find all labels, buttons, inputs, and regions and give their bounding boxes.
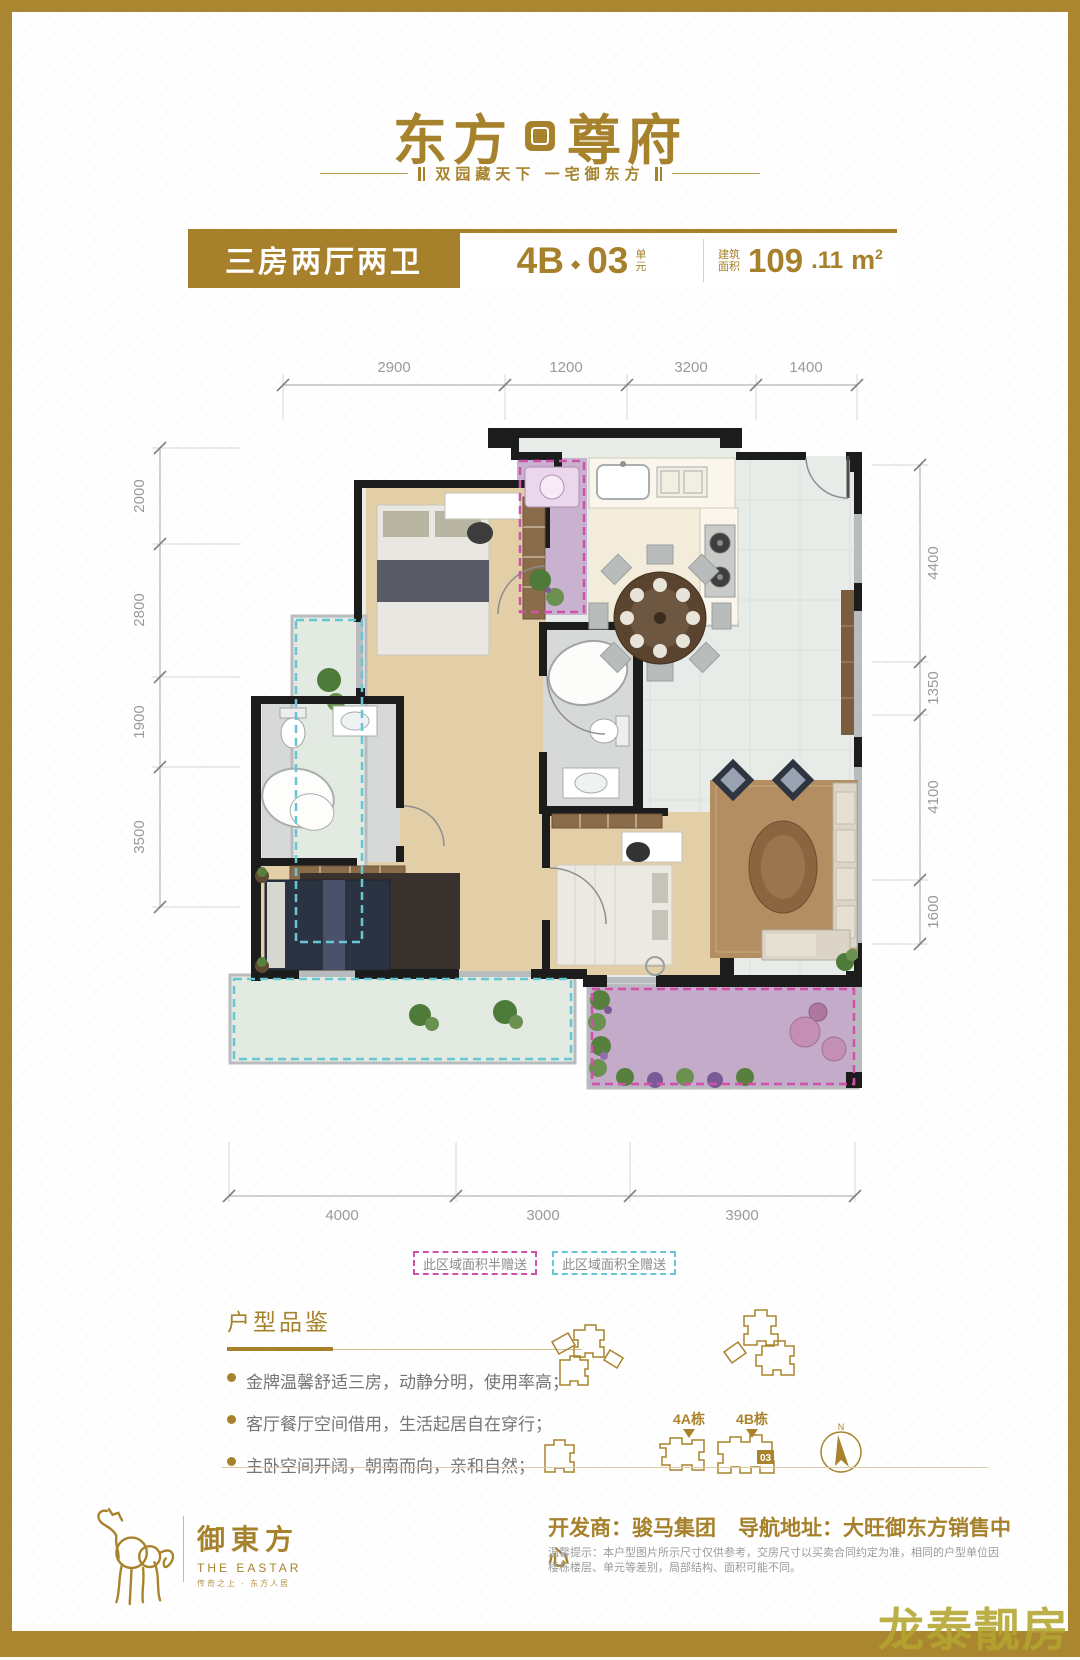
bullet-icon [227, 1373, 236, 1382]
area-unit: m2 [851, 245, 883, 276]
spec-bar: 三房两厅两卫 4B ◆ 03 单 元 建筑 面积 109.11 m2 [188, 229, 897, 288]
feature-text-1: 金牌温馨舒适三房，动静分明，使用率高； [246, 1368, 569, 1393]
footer-logo: 御東方 THE EASTAR 传奇之上 · 东方人居 [197, 1518, 301, 1589]
footer-divider [222, 1467, 988, 1468]
marker-4b-icon [746, 1429, 758, 1438]
wardrobe-bedroom3 [552, 814, 662, 828]
master-furniture [255, 867, 460, 973]
unit-code: 4B [517, 240, 564, 282]
dim-top-3: 3200 [674, 359, 707, 376]
terrace-pouf [790, 1017, 820, 1047]
floor-plan [205, 425, 865, 1095]
dim-bottom-3: 3900 [725, 1207, 758, 1224]
area-label-top: 建筑 [718, 249, 740, 261]
marker-4a-icon [683, 1429, 695, 1438]
bullet-icon [227, 1457, 236, 1466]
dim-bottom-1: 4000 [325, 1207, 358, 1224]
dim-top-1: 2900 [377, 359, 410, 376]
building-4a [660, 1438, 704, 1470]
bullet-icon [227, 1415, 236, 1424]
area-group: 建筑 面积 109.11 m2 [704, 233, 897, 288]
legend-full-gift: 此区域面积全赠送 [552, 1251, 676, 1275]
wardrobe-bedroom2 [523, 497, 545, 619]
footer-logo-sub: 传奇之上 · 东方人居 [197, 1578, 301, 1589]
unit-suffix-top: 单 [635, 249, 646, 261]
compass-icon: N [821, 1422, 861, 1472]
compass-n: N [838, 1422, 845, 1432]
unit-code-group: 4B ◆ 03 单 元 [460, 233, 703, 288]
features-rule [227, 1347, 582, 1351]
watermark: 龙泰靓房 [878, 1594, 1070, 1660]
unit-suffix: 单 元 [635, 249, 646, 273]
area-dec: .11 [811, 247, 843, 275]
area-sup: 2 [875, 246, 883, 262]
balcony-bottom [230, 975, 575, 1063]
feature-text-3: 主卧空间开阔，朝南而向，亲和自然； [246, 1452, 535, 1477]
brand-seal-icon [525, 121, 555, 151]
dim-left-4: 3500 [131, 820, 148, 853]
tagline-bars-right-icon [655, 167, 662, 181]
area-label: 建筑 面积 [718, 249, 740, 273]
unit-suffix-bottom: 元 [635, 261, 646, 273]
unit-number: 03 [587, 240, 628, 282]
spec-bar-right: 4B ◆ 03 单 元 建筑 面积 109.11 m2 [460, 229, 897, 288]
legend-full-label: 此区域面积全赠送 [562, 1254, 666, 1273]
area-int: 109 [748, 242, 803, 280]
unit-badge-text: 03 [760, 1453, 772, 1464]
kitchen-sink [597, 465, 649, 499]
tagline-rule-left [320, 173, 408, 174]
dim-top-4: 1400 [789, 359, 822, 376]
developer-name: 开发商：骏马集团 [548, 1517, 716, 1540]
chair2 [467, 522, 493, 544]
building-outlines [545, 1310, 794, 1473]
label-4b: 4B栋 [736, 1411, 768, 1427]
horse-logo-icon [86, 1502, 181, 1614]
tagline-rule-right [672, 173, 760, 174]
desk2 [445, 493, 520, 519]
footer-logo-cn: 御東方 [197, 1518, 301, 1558]
brand-tagline-row: 双园藏天下 一宅御东方 [0, 163, 1080, 184]
dim-right-2: 1350 [925, 671, 942, 704]
terrace [588, 985, 858, 1088]
legend-half-label: 此区域面积半赠送 [423, 1254, 527, 1273]
dim-right-4: 1600 [925, 895, 942, 928]
footer-logo-en: THE EASTAR [197, 1561, 301, 1575]
dim-left-2: 2800 [131, 593, 148, 626]
terrace-pouf [822, 1037, 846, 1061]
dim-left-3: 1900 [131, 705, 148, 738]
tagline-bars-left-icon [418, 167, 425, 181]
site-plan: 4A栋 4B栋 03 N [530, 1295, 1000, 1495]
disclaimer-text: 温馨提示：本户型图片所示尺寸仅供参考，交房尺寸以买卖合同约定为准，相同的户型单位… [548, 1546, 1000, 1576]
legend-half-gift: 此区域面积半赠送 [413, 1251, 537, 1275]
layout-type-label: 三房两厅两卫 [188, 229, 460, 288]
label-4a: 4A栋 [673, 1411, 705, 1427]
dim-right-1: 4400 [925, 546, 942, 579]
footer-logo-divider [183, 1516, 184, 1582]
dim-right-3: 4100 [925, 780, 942, 813]
dim-bottom-2: 3000 [526, 1207, 559, 1224]
chair3 [626, 842, 650, 862]
area-label-bottom: 面积 [718, 261, 740, 273]
poster-page: 东方 尊府 双园藏天下 一宅御东方 三房两厅两卫 4B ◆ 03 单 元 [0, 0, 1080, 1657]
diamond-icon: ◆ [571, 257, 580, 271]
feature-text-2: 客厅餐厅空间借用，生活起居自在穿行； [246, 1410, 552, 1435]
dim-top-2: 1200 [549, 359, 582, 376]
brand-tagline: 双园藏天下 一宅御东方 [435, 163, 644, 184]
dim-left-1: 2000 [131, 479, 148, 512]
